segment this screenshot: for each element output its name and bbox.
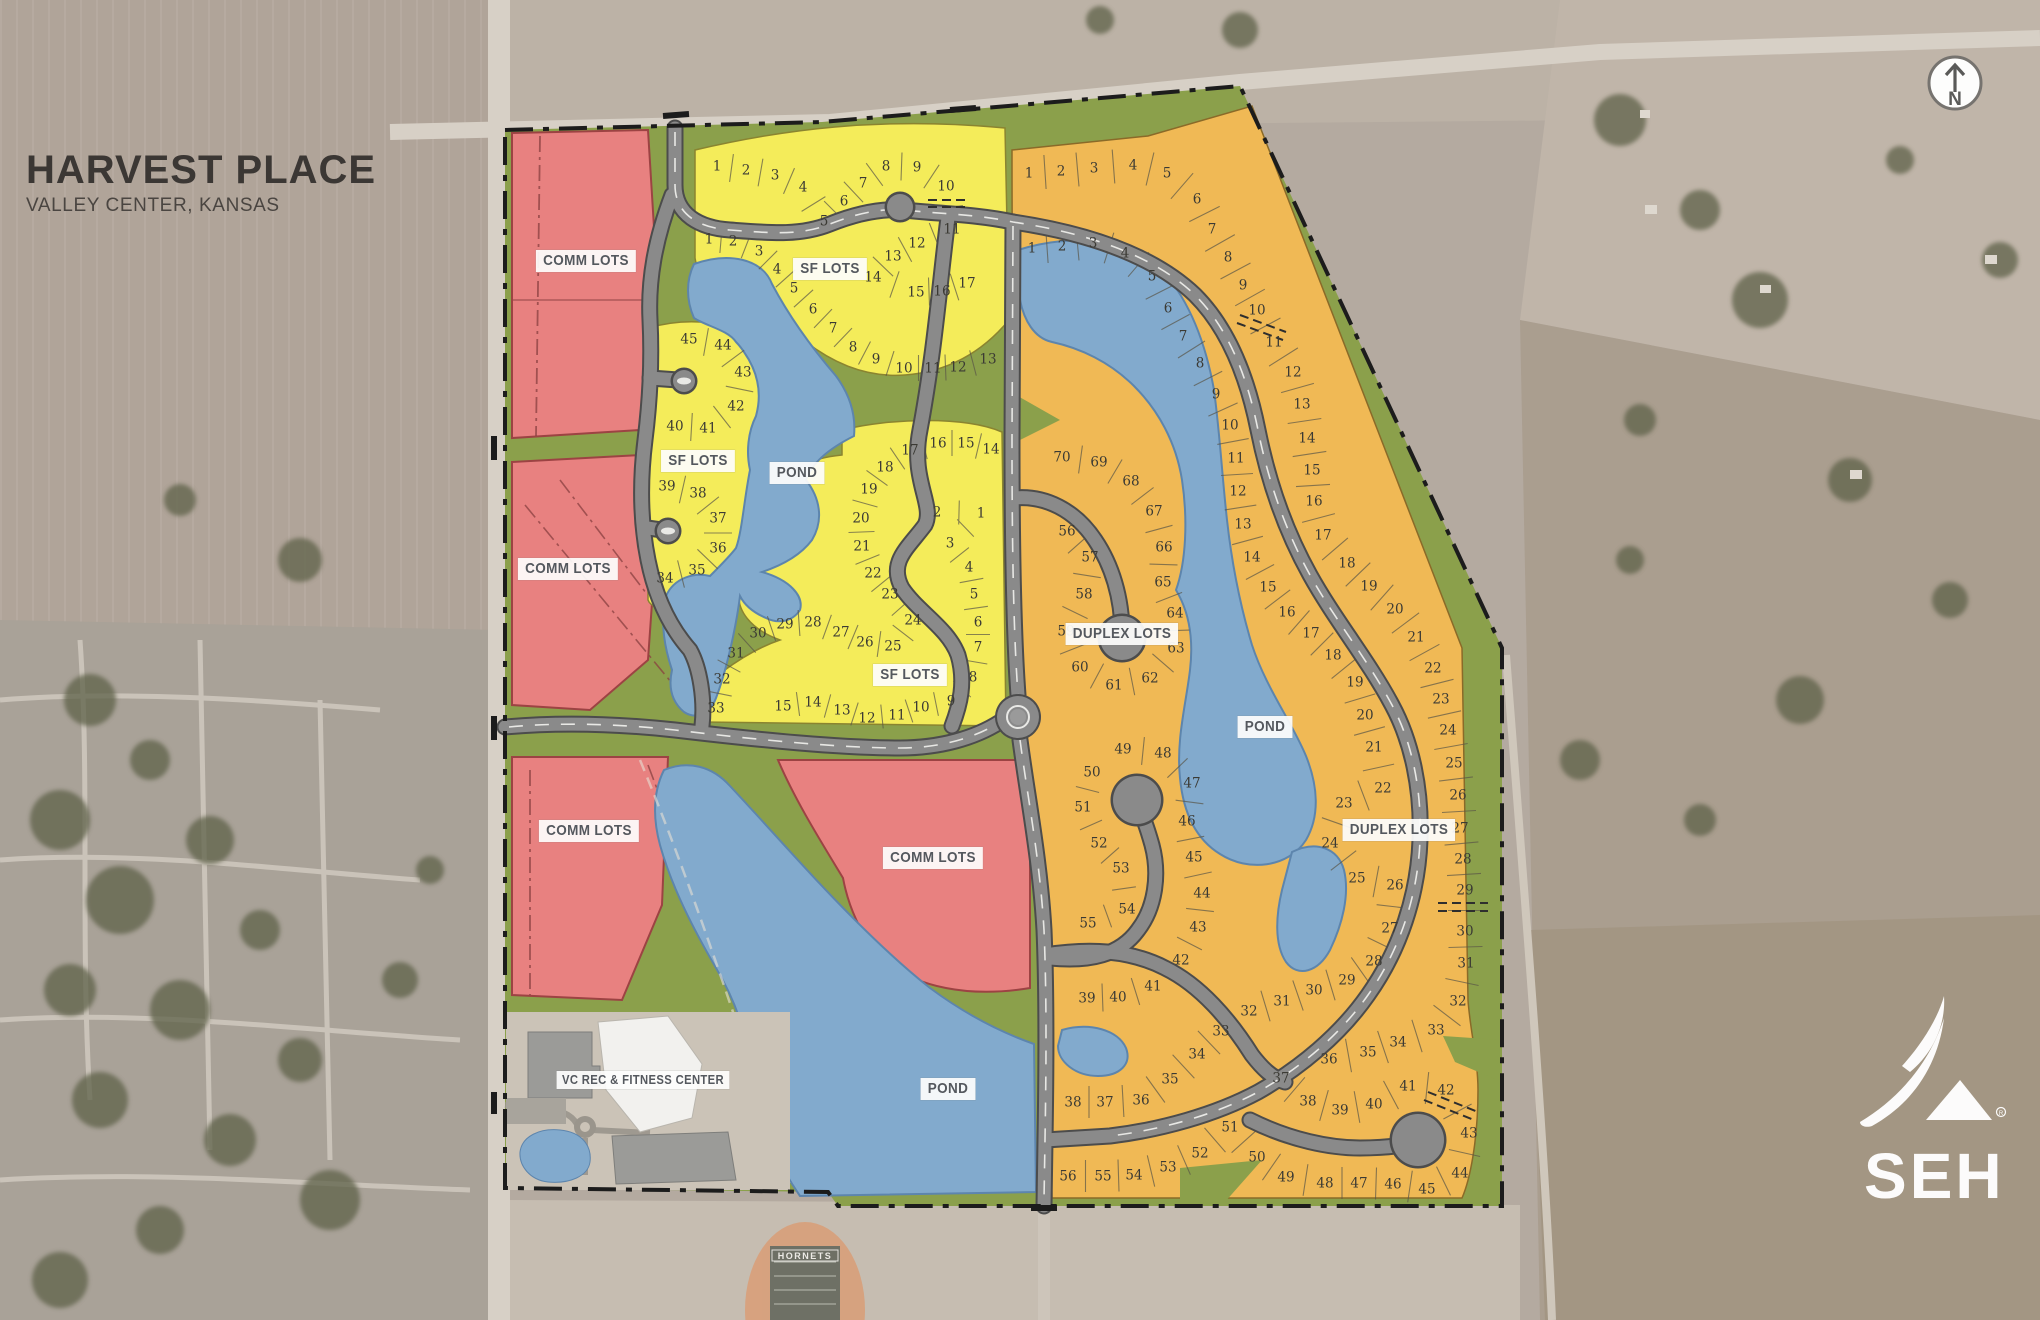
lot-number: 25 [1445, 756, 1462, 772]
lot-number: 52 [1090, 836, 1107, 852]
lot-number: 65 [1154, 575, 1171, 591]
lot-number: 3 [1090, 161, 1099, 177]
lot-number: 12 [1284, 365, 1301, 381]
lot-number: 14 [804, 695, 821, 711]
lot-number: 3 [946, 536, 955, 552]
lot-number: 20 [1386, 602, 1403, 618]
lot-number: 41 [1144, 979, 1161, 995]
lot-number: 5 [820, 214, 829, 230]
lot-number: 17 [901, 443, 918, 459]
lot-number: 45 [1418, 1182, 1435, 1198]
lot-number: 15 [957, 436, 974, 452]
lot-number: 3 [755, 244, 764, 260]
svg-text:R: R [1999, 1111, 2004, 1117]
pond-vc [520, 1130, 590, 1183]
lot-number: 34 [1389, 1035, 1406, 1051]
lot-number: 19 [860, 482, 877, 498]
lot-number: 31 [1457, 956, 1474, 972]
building [528, 1032, 600, 1098]
lot-number: 40 [666, 419, 683, 435]
lot-number: 20 [1356, 708, 1373, 724]
lot-number: 17 [958, 276, 975, 292]
lot-number: 5 [970, 587, 979, 603]
lot-number: 49 [1114, 742, 1131, 758]
lot-number: 23 [1432, 692, 1449, 708]
lot-number: 9 [1212, 387, 1221, 403]
north-arrow: N [1929, 57, 1981, 110]
lot-number: 15 [1259, 580, 1276, 596]
lot-number: 28 [1365, 954, 1382, 970]
lot-number: 7 [829, 321, 838, 337]
lot-number: 35 [1359, 1045, 1376, 1061]
lot-number: 24 [1439, 723, 1456, 739]
lot-number: 30 [749, 626, 766, 642]
lot-number: 61 [1105, 678, 1122, 694]
lot-number: 60 [1071, 660, 1088, 676]
lot-number: 13 [1293, 397, 1310, 413]
lot-number: 1 [977, 506, 986, 522]
lot-number: 39 [658, 479, 675, 495]
lot-number: 45 [680, 332, 697, 348]
lot-number: 15 [907, 285, 924, 301]
lot-number: 57 [1081, 550, 1098, 566]
lot-number: 12 [949, 360, 966, 376]
lot-number: 34 [656, 571, 673, 587]
lot-number: 9 [872, 352, 881, 368]
lot-number: 51 [1221, 1120, 1238, 1136]
lot-number: 14 [1243, 550, 1260, 566]
title-block: HARVEST PLACE VALLEY CENTER, KANSAS [26, 148, 376, 217]
lot-number: 10 [912, 700, 929, 716]
lot-number: 5 [1148, 269, 1157, 285]
comm-lots-area [512, 130, 656, 438]
lot-number: 11 [924, 361, 941, 377]
stadium-name: HORNETS [778, 1251, 833, 1261]
lot-number: 36 [1320, 1052, 1337, 1068]
lot-number: 18 [876, 460, 893, 476]
lot-number: 41 [1399, 1079, 1416, 1095]
lot-number: 44 [1451, 1166, 1468, 1182]
lot-number: 69 [1090, 455, 1107, 471]
lot-number: 33 [1212, 1024, 1229, 1040]
lot-number: 5 [790, 281, 799, 297]
lot-number: 7 [974, 640, 983, 656]
lot-number: 38 [1299, 1094, 1316, 1110]
lot-number: 2 [1058, 239, 1067, 255]
lot-number: 37 [709, 511, 726, 527]
lot-number: 13 [979, 352, 996, 368]
lot-number: 33 [1427, 1023, 1444, 1039]
lot-number: 43 [1189, 920, 1206, 936]
lot-number: 50 [1083, 765, 1100, 781]
lot-number: 6 [809, 302, 818, 318]
lot-number: 27 [1381, 921, 1398, 937]
lot-number: 49 [1277, 1170, 1294, 1186]
lot-number: 34 [1188, 1047, 1205, 1063]
lot-number: 63 [1167, 641, 1184, 657]
lot-number: 42 [1437, 1083, 1454, 1099]
vc-rec-site [505, 1012, 790, 1190]
lot-number: 39 [1078, 991, 1095, 1007]
lot-number: 13 [884, 249, 901, 265]
lot-number: 28 [1454, 852, 1471, 868]
lot-number: 54 [1118, 902, 1135, 918]
lot-number: 70 [1053, 450, 1070, 466]
lot-number: 1 [1025, 166, 1034, 182]
lot-number: 14 [864, 270, 881, 286]
lot-number: 1 [705, 232, 714, 248]
lot-number: 10 [1221, 418, 1238, 434]
lot-number: 26 [856, 635, 873, 651]
lot-number: 29 [1456, 883, 1473, 899]
lot-number: 3 [1089, 236, 1098, 252]
lot-number: 52 [1191, 1146, 1208, 1162]
lot-number: 50 [1248, 1150, 1265, 1166]
lot-number: 17 [1314, 528, 1331, 544]
lot-number: 1 [713, 159, 722, 175]
lot-number: 5 [1163, 166, 1172, 182]
lot-number: 22 [1424, 661, 1441, 677]
lot-number: 36 [709, 541, 726, 557]
lot-number: 28 [804, 615, 821, 631]
lot-number: 56 [1059, 1169, 1076, 1185]
lot-number: 45 [1185, 850, 1202, 866]
lot-number: 16 [1278, 605, 1295, 621]
lot-number: 11 [1227, 451, 1244, 467]
lot-number: 48 [1316, 1176, 1333, 1192]
lot-number: 7 [1179, 329, 1188, 345]
lot-number: 26 [1449, 788, 1466, 804]
lot-number: 6 [840, 194, 849, 210]
lot-number: 40 [1365, 1097, 1382, 1113]
lot-number: 6 [1193, 192, 1202, 208]
lot-number: 38 [1064, 1095, 1081, 1111]
lot-number: 7 [1208, 222, 1217, 238]
lot-number: 43 [1460, 1126, 1477, 1142]
lot-number: 24 [904, 613, 921, 629]
lot-number: 23 [1335, 796, 1352, 812]
lot-number: 10 [895, 361, 912, 377]
lot-number: 46 [1178, 814, 1195, 830]
lot-number: 17 [1302, 626, 1319, 642]
lot-number: 58 [1075, 587, 1092, 603]
lot-number: 31 [727, 646, 744, 662]
lot-number: 15 [774, 699, 791, 715]
lot-number: 16 [929, 436, 946, 452]
lot-number: 56 [1058, 524, 1075, 540]
lot-number: 4 [799, 180, 808, 196]
lot-number: 18 [1324, 648, 1341, 664]
lot-number: 26 [1386, 878, 1403, 894]
lot-number: 29 [1338, 973, 1355, 989]
lot-number: 32 [713, 672, 730, 688]
lot-number: 2 [729, 234, 738, 250]
lot-number: 41 [699, 421, 716, 437]
lot-number: 32 [1240, 1004, 1257, 1020]
lot-number: 42 [1172, 953, 1189, 969]
lot-number: 55 [1094, 1169, 1111, 1185]
lot-number: 47 [1183, 776, 1200, 792]
lot-number: 53 [1159, 1160, 1176, 1176]
lot-number: 44 [714, 338, 731, 354]
lot-number: 9 [1239, 278, 1248, 294]
lot-number: 44 [1193, 886, 1210, 902]
lot-number: 42 [727, 399, 744, 415]
lot-number: 30 [1456, 924, 1473, 940]
lot-number: 32 [1449, 994, 1466, 1010]
lot-number: 8 [1224, 250, 1233, 266]
lot-number: 22 [1374, 781, 1391, 797]
lot-number: 29 [776, 617, 793, 633]
lot-number: 36 [1132, 1093, 1149, 1109]
lot-number: 68 [1122, 474, 1139, 490]
lot-number: 33 [707, 701, 724, 717]
lot-number: 35 [1161, 1072, 1178, 1088]
lot-number: 6 [1164, 301, 1173, 317]
lot-number: 66 [1155, 540, 1172, 556]
lot-number: 37 [1096, 1095, 1113, 1111]
lot-number: 39 [1331, 1103, 1348, 1119]
lot-number: 43 [734, 365, 751, 381]
lot-number: 19 [1346, 675, 1363, 691]
lot-number: 12 [858, 711, 875, 727]
lot-number: 1 [1028, 241, 1037, 257]
lot-number: 8 [969, 670, 978, 686]
lot-number: 22 [864, 566, 881, 582]
lot-number: 9 [913, 160, 922, 176]
page-title: HARVEST PLACE [26, 148, 376, 193]
lot-number: 18 [1338, 556, 1355, 572]
lot-number: 3 [771, 168, 780, 184]
lot-number: 13 [833, 703, 850, 719]
lot-number: 16 [933, 284, 950, 300]
lot-number: 9 [947, 694, 956, 710]
lot-number: 30 [1305, 983, 1322, 999]
site-plan-page: HORNETS 12345678910111213141516171234567… [0, 0, 2040, 1320]
page-subtitle: VALLEY CENTER, KANSAS [26, 195, 376, 217]
lot-number: 12 [1229, 484, 1246, 500]
lot-number: 12 [908, 236, 925, 252]
lot-number: 38 [689, 486, 706, 502]
seh-wordmark: SEH [1864, 1140, 2005, 1212]
lot-number: 4 [1121, 246, 1130, 262]
lot-number: 25 [884, 639, 901, 655]
lot-number: 14 [1298, 431, 1315, 447]
lot-number: 8 [1196, 356, 1205, 372]
lot-number: 10 [937, 179, 954, 195]
lot-number: 35 [688, 563, 705, 579]
north-label: N [1948, 89, 1962, 110]
lot-number: 27 [1451, 821, 1468, 837]
lot-number: 8 [882, 159, 891, 175]
lot-number: 4 [773, 262, 782, 278]
lot-number: 62 [1141, 671, 1158, 687]
lot-number: 8 [849, 340, 858, 356]
lot-number: 40 [1109, 990, 1126, 1006]
lot-number: 11 [888, 708, 905, 724]
lot-number: 59 [1057, 624, 1074, 640]
lot-number: 21 [853, 539, 870, 555]
lot-number: 51 [1074, 800, 1091, 816]
lot-number: 46 [1384, 1177, 1401, 1193]
lot-number: 15 [1303, 463, 1320, 479]
lot-number: 16 [1305, 494, 1322, 510]
lot-number: 11 [943, 222, 960, 238]
lot-number: 24 [1321, 836, 1338, 852]
lot-number: 4 [1129, 158, 1138, 174]
lot-number: 25 [1348, 871, 1365, 887]
lot-number: 64 [1166, 606, 1183, 622]
lot-number: 54 [1125, 1168, 1142, 1184]
lot-number: 21 [1365, 740, 1382, 756]
lot-number: 48 [1154, 746, 1171, 762]
lot-number: 4 [965, 560, 974, 576]
lot-number: 7 [859, 176, 868, 192]
lot-number: 6 [974, 615, 983, 631]
lot-number: 11 [1265, 335, 1282, 351]
lot-number: 2 [1057, 164, 1066, 180]
lot-number: 14 [982, 442, 999, 458]
lot-number: 53 [1112, 861, 1129, 877]
lot-number: 21 [1407, 630, 1424, 646]
lot-number: 2 [933, 505, 942, 521]
lot-number: 27 [832, 625, 849, 641]
lot-number: 13 [1234, 517, 1251, 533]
lot-number: 10 [1248, 303, 1265, 319]
lot-number: 55 [1079, 916, 1096, 932]
lot-number: 31 [1273, 994, 1290, 1010]
lot-number: 19 [1360, 579, 1377, 595]
building [612, 1132, 736, 1184]
lot-number: 37 [1272, 1071, 1289, 1087]
lot-number: 20 [852, 511, 869, 527]
lot-number: 47 [1350, 1176, 1367, 1192]
lot-number: 67 [1145, 504, 1162, 520]
lot-number: 2 [742, 163, 751, 179]
lot-number: 23 [881, 587, 898, 603]
